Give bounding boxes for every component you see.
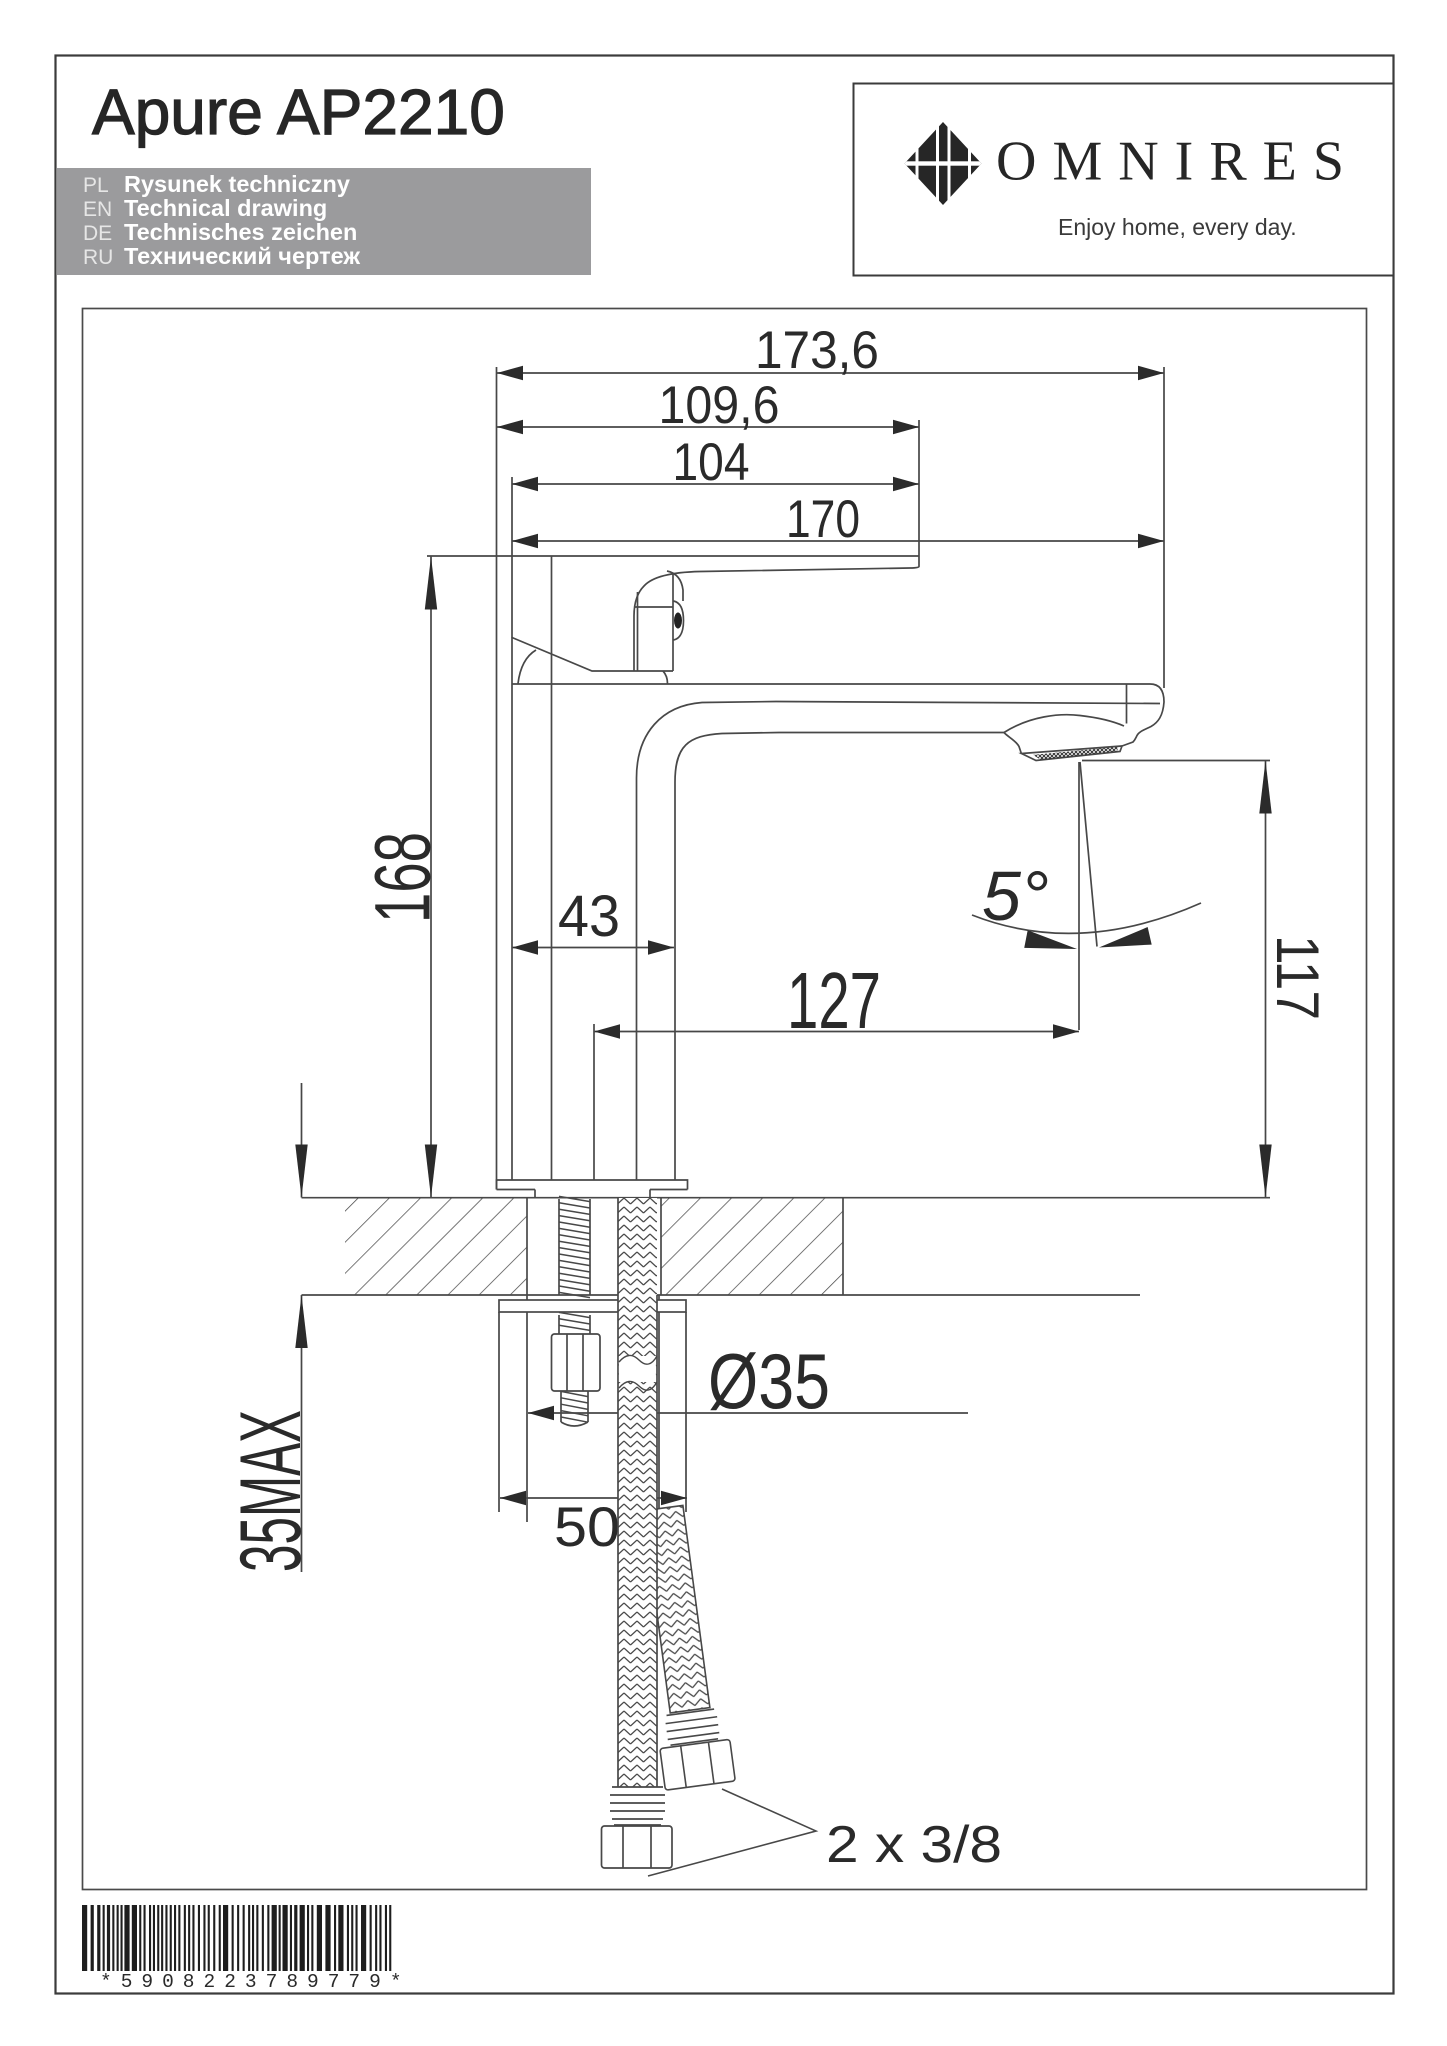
svg-text:Technical drawing: Technical drawing [124,195,327,221]
svg-text:5°: 5° [982,857,1049,935]
svg-text:50: 50 [554,1495,620,1558]
svg-text:168: 168 [358,832,447,923]
svg-text:Apure AP2210: Apure AP2210 [92,76,505,148]
svg-text:EN: EN [83,198,112,221]
svg-text:Технический чертеж: Технический чертеж [124,243,360,269]
svg-text:PL: PL [83,174,109,197]
svg-text:Enjoy home, every day.: Enjoy home, every day. [1058,214,1297,240]
svg-text:2 x 3/8: 2 x 3/8 [826,1816,1002,1874]
svg-text:Ø35: Ø35 [708,1337,830,1425]
svg-text:170: 170 [786,490,860,549]
svg-text:DE: DE [83,222,112,245]
svg-text:RU: RU [83,246,113,269]
svg-text:Rysunek techniczny: Rysunek techniczny [124,171,350,197]
svg-text:*5908223789779*: *5908223789779* [100,1971,411,1993]
svg-text:OMNIRES: OMNIRES [996,131,1360,193]
svg-text:Technisches zeichen: Technisches zeichen [124,219,357,245]
svg-text:109,6: 109,6 [659,376,780,435]
svg-text:35MAX: 35MAX [223,1410,319,1572]
svg-text:104: 104 [673,433,750,492]
svg-text:117: 117 [1264,935,1331,1020]
svg-text:173,6: 173,6 [755,321,879,380]
svg-text:43: 43 [558,884,620,949]
svg-text:127: 127 [787,956,881,1045]
